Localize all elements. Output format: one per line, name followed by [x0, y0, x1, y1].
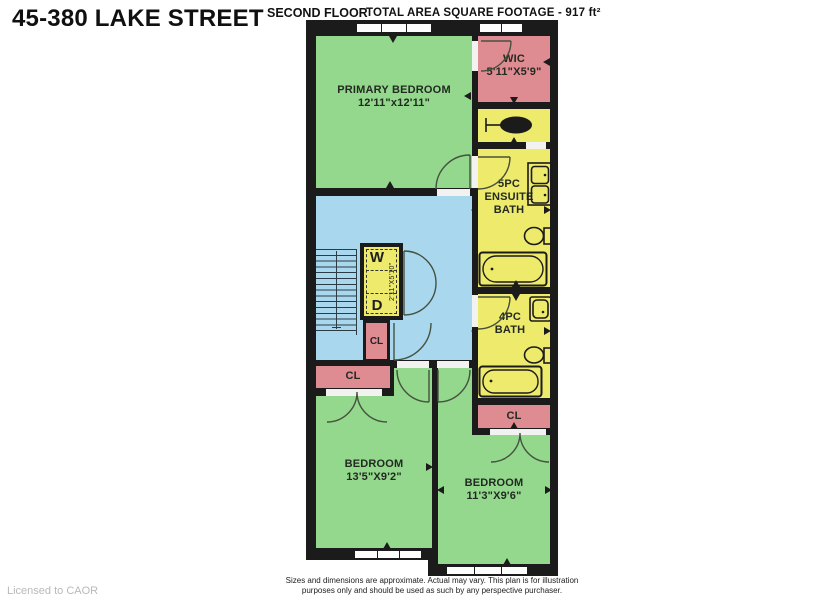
door-gap-ensuite [472, 156, 478, 188]
room-ensuite-bath: 5PC ENSUITE BATH [478, 149, 550, 287]
window-divider [501, 567, 502, 574]
window-divider [399, 551, 400, 558]
dimension-tick-icon [510, 422, 518, 429]
window-marker-icon [479, 23, 523, 33]
dimension-tick-icon [389, 36, 397, 43]
room-closet-bedroom-left: CL [316, 366, 390, 388]
primary-bedroom-name: PRIMARY BEDROOM [316, 84, 472, 97]
bath-label-1: 4PC [478, 311, 542, 324]
washer-label: W [367, 249, 387, 266]
door-gap-4pc-bath [472, 295, 478, 327]
floor-label: SECOND FLOOR [267, 6, 368, 20]
dimension-tick-icon [471, 327, 478, 335]
dimension-tick-icon [426, 463, 433, 471]
wic-name: WIC [478, 53, 550, 66]
dimension-tick-icon [510, 97, 518, 104]
room-4pc-bath: 4PC BATH [478, 294, 550, 398]
room-primary-bedroom: PRIMARY BEDROOM 12'11"x12'11" [316, 36, 472, 188]
bedroom-right-dims: 11'3"X9'6" [438, 490, 550, 503]
dimension-tick-icon [544, 327, 551, 335]
bedroom-left-name: BEDROOM [316, 458, 432, 471]
window-divider [381, 24, 382, 32]
disclaimer-line-2: purposes only and should be used as such… [272, 586, 592, 596]
dimension-tick-icon [512, 294, 520, 301]
window-marker-icon [356, 23, 432, 33]
closet-left-label: CL [316, 370, 390, 383]
dimension-tick-icon [383, 542, 391, 549]
dimension-tick-icon [544, 206, 551, 214]
door-gap-wic [472, 41, 478, 71]
ensuite-label-3: BATH [478, 204, 540, 217]
dimension-tick-icon [464, 92, 471, 100]
window-divider [501, 24, 502, 32]
door-gap-closet-left [326, 389, 382, 396]
disclaimer: Sizes and dimensions are approximate. Ac… [272, 576, 592, 596]
dryer-label: D [367, 297, 387, 314]
page-title: 45-380 LAKE STREET [12, 5, 264, 33]
dimension-tick-icon [503, 558, 511, 565]
washer-dryer-dims: 2'11"X5'10" [389, 249, 399, 314]
door-gap-bedroom-right [437, 361, 469, 368]
dimension-tick-icon [510, 137, 518, 144]
dimension-tick-icon [309, 90, 316, 98]
primary-bedroom-dims: 12'11"x12'11" [316, 97, 472, 110]
dimension-tick-icon [545, 486, 552, 494]
bedroom-left-dims: 13'5"X9'2" [316, 471, 432, 484]
bedroom-right-name: BEDROOM [438, 477, 550, 490]
dimension-tick-icon [471, 206, 478, 214]
stairs-direction-endbar [332, 327, 341, 328]
window-divider [406, 24, 407, 32]
room-bedroom-left: BEDROOM 13'5"X9'2" [316, 396, 432, 548]
ensuite-label-1: 5PC [478, 178, 540, 191]
window-marker-icon [354, 550, 422, 559]
room-bedroom-right: BEDROOM 11'3"X9'6" [438, 435, 550, 564]
dimension-tick-icon [437, 486, 444, 494]
stairs-icon [316, 249, 357, 335]
dimension-tick-icon [543, 58, 550, 66]
disclaimer-line-1: Sizes and dimensions are approximate. Ac… [272, 576, 592, 586]
floor-plan-page: 45-380 LAKE STREET SECOND FLOOR TOTAL AR… [0, 0, 825, 607]
room-closet-hall: CL [363, 320, 390, 362]
dimension-tick-icon [308, 463, 315, 471]
door-gap-bedroom-left [397, 361, 429, 368]
area-label: TOTAL AREA SQUARE FOOTAGE - 917 ft² [366, 7, 601, 19]
door-gap-laundry-ensuite [526, 142, 546, 149]
room-bedroom-right-arm [438, 368, 472, 438]
window-divider [377, 551, 378, 558]
door-gap-primary-bedroom [437, 189, 470, 196]
dimension-tick-icon [512, 280, 520, 287]
door-gap-closet-right [490, 429, 546, 435]
license-text: Licensed to CAOR [7, 585, 98, 597]
room-wic: WIC 5'11"X5'9" [478, 36, 550, 102]
window-marker-icon [446, 566, 528, 575]
ensuite-label-2: ENSUITE [478, 191, 540, 204]
window-divider [474, 567, 475, 574]
bath-label-2: BATH [478, 324, 542, 337]
washer-dryer-unit: W D 2'11"X5'10" [360, 243, 403, 320]
stairs-direction-line [336, 251, 337, 329]
dimension-tick-icon [510, 398, 518, 405]
wic-dims: 5'11"X5'9" [478, 66, 550, 79]
dimension-tick-icon [386, 181, 394, 188]
closet-hall-label: CL [370, 336, 383, 347]
